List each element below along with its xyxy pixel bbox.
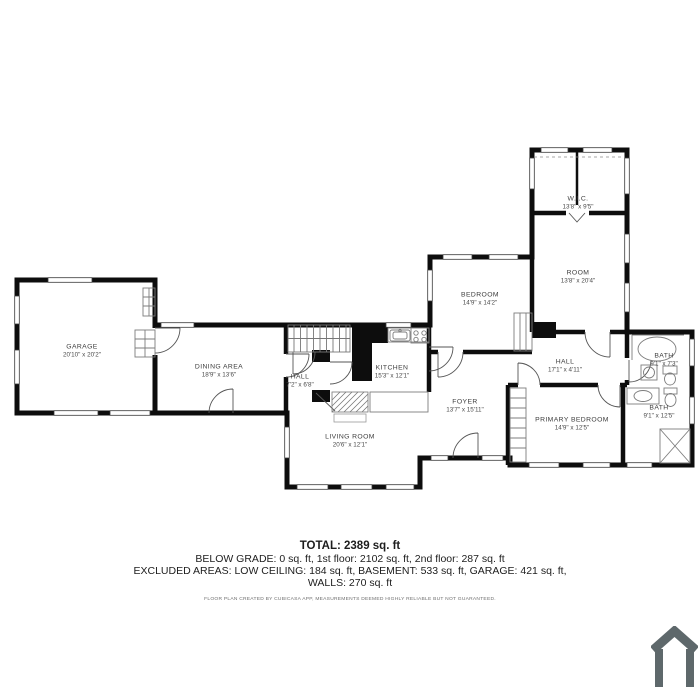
bath2-fixtures xyxy=(627,388,690,463)
kitchen-faucet xyxy=(399,329,401,331)
hall-stairs-door-arc xyxy=(293,352,315,374)
stairs-down-hatched xyxy=(332,392,368,422)
exterior-walls xyxy=(17,150,692,487)
disclaimer-text: FLOOR PLAN CREATED BY CUBICASA APP, MEAS… xyxy=(0,597,700,602)
bedroom-door-arc xyxy=(438,352,463,377)
bath1-door-arc xyxy=(629,360,651,382)
windows xyxy=(15,148,695,490)
floor-areas-text: BELOW GRADE: 0 sq. ft, 1st floor: 2102 s… xyxy=(0,553,700,565)
bath1-toilet xyxy=(665,373,676,385)
walls-area-text: WALLS: 270 sq. ft xyxy=(0,577,700,589)
floor-plan-page: GARAGE20'10" x 20'2" DINING AREA18'9" x … xyxy=(0,0,700,700)
cubicasa-house-logo-icon xyxy=(651,626,698,690)
excluded-areas-text: EXCLUDED AREAS: LOW CEILING: 184 sq. ft,… xyxy=(0,565,700,577)
bath1-fixtures xyxy=(632,335,684,385)
closets xyxy=(510,313,532,462)
wic-entry-chevron xyxy=(569,213,585,222)
front-entry-door-arc xyxy=(453,433,478,458)
bath2-door-arc xyxy=(598,385,620,407)
doors xyxy=(155,328,651,458)
primary-closet xyxy=(510,388,526,462)
hall-kitchen-door-arc xyxy=(330,362,352,384)
interior-walls xyxy=(286,213,627,465)
room-door-arc xyxy=(585,332,610,357)
bath2-toilet xyxy=(665,394,676,407)
stairs-up xyxy=(288,325,350,352)
area-summary: TOTAL: 2389 sq. ft BELOW GRADE: 0 sq. ft… xyxy=(0,540,700,602)
room-closet xyxy=(514,313,532,351)
dining-door-arc xyxy=(209,389,233,413)
total-area-text: TOTAL: 2389 sq. ft xyxy=(0,540,700,553)
primary-bedroom-door-arc xyxy=(518,363,540,385)
kitchen-island xyxy=(370,392,428,412)
